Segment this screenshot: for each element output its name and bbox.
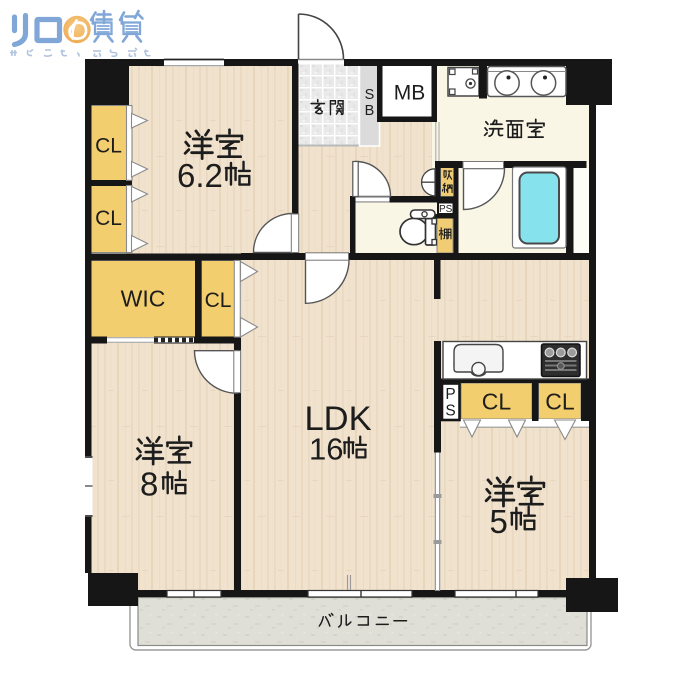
svg-text:CL: CL [95, 135, 122, 158]
svg-text:S: S [365, 87, 375, 103]
svg-text:P: P [445, 386, 455, 403]
svg-text:B: B [365, 103, 375, 119]
svg-text:8: 8 [140, 466, 158, 503]
svg-text:CL: CL [545, 389, 575, 415]
svg-text:5: 5 [490, 503, 508, 540]
svg-text:S: S [445, 403, 455, 420]
svg-text:WIC: WIC [121, 286, 166, 312]
svg-text:16: 16 [309, 432, 343, 467]
svg-text:6.2: 6.2 [177, 157, 223, 194]
svg-text:PS: PS [439, 204, 453, 215]
svg-text:CL: CL [482, 389, 512, 415]
svg-text:CL: CL [95, 207, 122, 230]
svg-text:CL: CL [205, 289, 232, 312]
svg-text:MB: MB [394, 82, 426, 105]
